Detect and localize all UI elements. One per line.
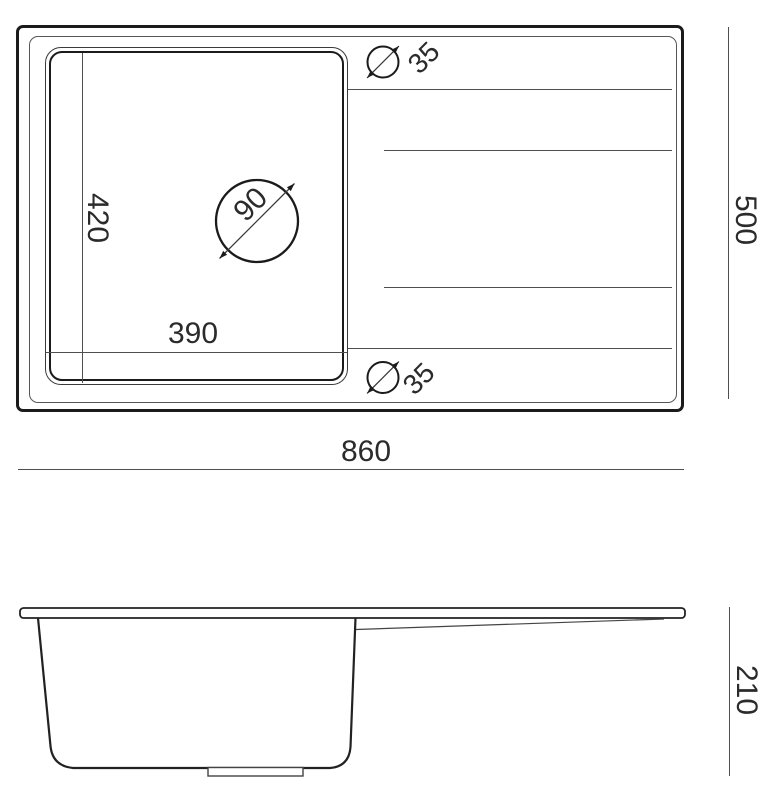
diameter-symbol-top-icon — [367, 46, 399, 78]
overall-width-dimension-text: 860 — [341, 437, 391, 467]
drain-fitting-boss — [208, 768, 303, 777]
side-height-dimension-text: 210 — [731, 665, 761, 715]
overall-depth-dimension-text: 500 — [730, 195, 760, 245]
drainboard-underside-line — [356, 619, 664, 630]
diameter-symbol-bottom-icon — [367, 362, 399, 394]
sink-technical-drawing: 420 390 90 35 35 860 500 210 — [0, 0, 781, 800]
drawing-geometry — [0, 0, 781, 800]
bowl-profile-outline — [38, 618, 356, 768]
bowl-depth-dimension-text: 420 — [82, 193, 112, 243]
sink-side-view — [20, 608, 685, 776]
bowl-width-dimension-text: 390 — [168, 319, 218, 349]
countertop-rim-profile — [20, 608, 685, 618]
